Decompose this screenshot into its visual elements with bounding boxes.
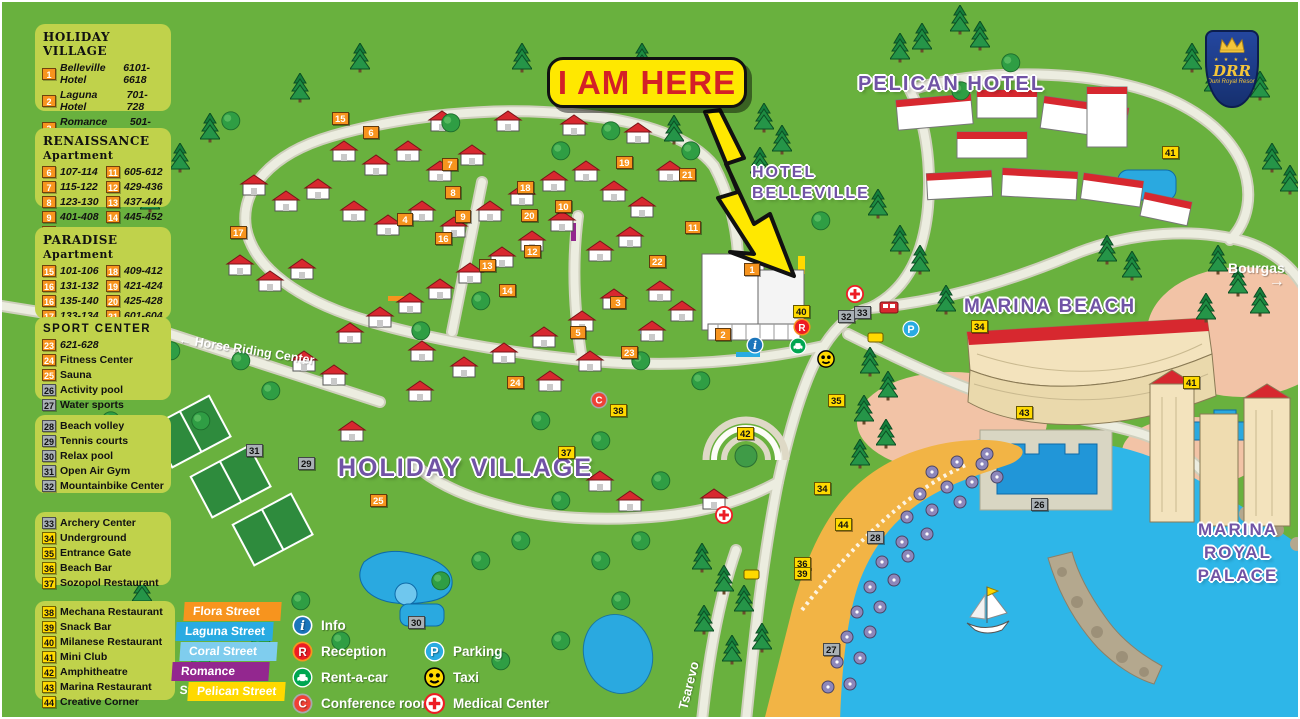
region-label-pelican-hotel: PELICAN HOTEL: [858, 72, 1045, 96]
legend-item-label: Marina Restaurant: [60, 681, 152, 693]
map-marker-7: 7: [442, 158, 458, 171]
legend-item-number-badge: 24: [42, 354, 56, 366]
legend-item-number-badge: 1: [42, 68, 56, 80]
legend-item-number-badge: 13: [106, 196, 120, 208]
legend-item: 25Sauna: [42, 369, 164, 381]
legend-column: 33Archery Center34Underground35Entrance …: [42, 517, 164, 589]
map-marker-44: 44: [835, 518, 852, 531]
legend-item-label: 445-452: [124, 211, 163, 223]
map-marker-38: 38: [610, 404, 627, 417]
rentacar-icon: [789, 337, 807, 355]
legend-item-label: Activity pool: [60, 384, 123, 396]
map-marker-26: 26: [1031, 498, 1048, 511]
legend-item: 8123-130: [42, 196, 100, 208]
legend-item: 23621-628: [42, 339, 164, 351]
medical-icon: [424, 693, 445, 714]
legend-item-number-badge: 8: [42, 196, 56, 208]
legend-item-label: Snack Bar: [60, 621, 111, 633]
legend-item-label: Relax pool: [60, 450, 113, 462]
legend-item-label: 621-628: [60, 339, 99, 351]
legend-panel-title: HOLIDAY VILLAGE: [43, 30, 164, 58]
legend-item: 43Marina Restaurant: [42, 681, 168, 693]
street-legend-laguna-street: Laguna Street: [175, 622, 273, 641]
legend-panel-renaissance-apartment: RENAISSANCE Apartment6107-1147115-122812…: [35, 128, 171, 207]
legend-item-label: Fitness Center: [60, 354, 133, 366]
legend-item: 15101-106: [42, 265, 100, 277]
region-label-line: ROYAL: [1186, 541, 1290, 564]
reception-icon: R: [793, 318, 811, 336]
svg-text:i: i: [753, 339, 757, 352]
icon-legend-rentacar: Rent-a-car: [292, 667, 388, 688]
legend-item-number-badge: 31: [42, 465, 56, 477]
street-legend-romance-street: Romance Street: [171, 662, 269, 681]
svg-text:R: R: [298, 647, 307, 659]
legend-item: 28Beach volley: [42, 420, 164, 432]
legend-item: 38Mechana Restaurant: [42, 606, 168, 618]
legend-item: 27Water sports: [42, 399, 164, 411]
region-label-hotel-belleville: HOTELBELLEVILLE: [752, 162, 870, 204]
i-am-here-text: I AM HERE: [558, 64, 736, 102]
map-marker-15: 15: [332, 112, 349, 125]
map-marker-14: 14: [499, 284, 516, 297]
legend-item: 14445-452: [106, 211, 164, 223]
legend-item-value: 701-728: [127, 89, 164, 113]
icon-legend-conference: CConference room: [292, 693, 433, 714]
conference-icon: C: [590, 391, 608, 409]
map-marker-32: 32: [838, 310, 855, 323]
legend-item-number-badge: 25: [42, 369, 56, 381]
legend-item-number-badge: 11: [106, 166, 120, 178]
medical-icon: [715, 506, 733, 524]
conference-icon: C: [292, 693, 313, 714]
map-marker-16: 16: [435, 232, 452, 245]
map-marker-20: 20: [521, 209, 538, 222]
map-marker-1: 1: [744, 263, 760, 276]
legend-item-label: Sauna: [60, 369, 92, 381]
legend-item-number-badge: 36: [42, 562, 56, 574]
legend-item: 24Fitness Center: [42, 354, 164, 366]
legend-item-number-badge: 37: [42, 577, 56, 589]
legend-item-number-badge: 44: [42, 696, 56, 708]
legend-item-label: Mechana Restaurant: [60, 606, 163, 618]
legend-item-number-badge: 7: [42, 181, 56, 193]
legend-item: 16135-140: [42, 295, 100, 307]
legend-item-label: 115-122: [60, 181, 98, 193]
legend-item: 2Laguna Hotel701-728: [42, 89, 164, 113]
legend-item-label: 429-436: [124, 181, 163, 193]
legend-panel-subtitle: Apartment: [43, 149, 113, 162]
map-marker-9: 9: [455, 210, 471, 223]
legend-item-number-badge: 27: [42, 399, 56, 411]
legend-item-number-badge: 6: [42, 166, 56, 178]
logo-monogram: DRR: [1207, 63, 1257, 79]
legend-column: 23621-62824Fitness Center25Sauna26Activi…: [42, 339, 164, 411]
map-marker-23: 23: [621, 346, 638, 359]
legend-item-number-badge: 41: [42, 651, 56, 663]
legend-item-number-badge: 38: [42, 606, 56, 618]
legend-item-number-badge: 14: [106, 211, 120, 223]
legend-panel-sport-center: SPORT CENTER23621-62824Fitness Center25S…: [35, 317, 171, 400]
legend-item-number-badge: 42: [42, 666, 56, 678]
legend-item-number-badge: 26: [42, 384, 56, 396]
legend-item-label: Water sports: [60, 399, 124, 411]
map-marker-35: 35: [828, 394, 845, 407]
legend-item-label: Beach volley: [60, 420, 124, 432]
legend-item-number-badge: 35: [42, 547, 56, 559]
legend-panel-title: SPORT CENTER: [43, 323, 164, 335]
legend-item-label: 101-106: [60, 265, 99, 277]
icon-legend-medical: Medical Center: [424, 693, 549, 714]
legend-item-value: 6101-6618: [123, 62, 164, 86]
legend-item: 33Archery Center: [42, 517, 164, 529]
map-marker-33: 33: [854, 306, 871, 319]
info-icon: i: [746, 336, 764, 354]
map-marker-12: 12: [524, 245, 541, 258]
legend-item-label: 135-140: [60, 295, 99, 307]
legend-item-label: Mini Club: [60, 651, 107, 663]
map-marker-21: 21: [679, 168, 696, 181]
legend-panel-paradise-apartment: PARADISE Apartment15101-10616131-1321613…: [35, 227, 171, 319]
svg-text:C: C: [298, 699, 307, 711]
legend-item: 42Amphitheatre: [42, 666, 168, 678]
legend-item-number-badge: 15: [42, 265, 56, 277]
info-icon: i: [292, 615, 313, 636]
legend-item: 32Mountainbike Center: [42, 480, 164, 492]
map-marker-17: 17: [230, 226, 247, 239]
icon-legend-label: Info: [321, 618, 346, 633]
svg-text:R: R: [798, 323, 805, 334]
map-marker-24: 24: [507, 376, 524, 389]
map-marker-41: 41: [1162, 146, 1179, 159]
legend-item-number-badge: 40: [42, 636, 56, 648]
region-label-marina-beach: MARINA BEACH: [964, 296, 1136, 318]
map-marker-22: 22: [649, 255, 666, 268]
svg-text:C: C: [595, 396, 602, 407]
map-marker-5: 5: [570, 326, 586, 339]
legend-item-label: 421-424: [124, 280, 163, 292]
map-marker-3: 3: [610, 296, 626, 309]
legend-item: 37Sozopol Restaurant: [42, 577, 164, 589]
map-marker-2: 2: [715, 328, 731, 341]
region-label-marina-royal-palace: MARINAROYALPALACE: [1186, 518, 1290, 587]
legend-columns: 33Archery Center34Underground35Entrance …: [42, 517, 164, 589]
region-label-line: MARINA: [1186, 518, 1290, 541]
legend-item-number-badge: 33: [42, 517, 56, 529]
rentacar-icon: [292, 667, 313, 688]
map-marker-10: 10: [555, 200, 572, 213]
legend-item-label: Entrance Gate: [60, 547, 131, 559]
icon-legend-label: Rent-a-car: [321, 670, 388, 685]
region-label-line: HOLIDAY VILLAGE: [338, 454, 593, 482]
road-label-bourgas: Bourgas→: [1228, 260, 1285, 291]
legend-item: 18409-412: [106, 265, 164, 277]
medical-icon: [846, 285, 864, 303]
icon-legend-label: Reception: [321, 644, 386, 659]
legend-item-number-badge: 34: [42, 532, 56, 544]
legend-item-label: Tennis courts: [60, 435, 128, 447]
icon-legend-label: Parking: [453, 644, 503, 659]
legend-item-number-badge: 18: [106, 265, 120, 277]
legend-item: 19421-424: [106, 280, 164, 292]
map-marker-13: 13: [479, 259, 496, 272]
region-label-line: HOTEL: [752, 162, 870, 183]
map-marker-8: 8: [445, 186, 461, 199]
map-marker-41: 41: [1183, 376, 1200, 389]
legend-item-number-badge: 2: [42, 95, 56, 107]
icon-legend-reception: RReception: [292, 641, 386, 662]
logo-name: Duni Royal Resort: [1207, 79, 1257, 86]
map-marker-37: 37: [558, 446, 575, 459]
map-marker-28: 28: [867, 531, 884, 544]
legend-item-label: Milanese Restaurant: [60, 636, 162, 648]
legend-item: 11605-612: [106, 166, 164, 178]
legend-item-number-badge: 16: [42, 295, 56, 307]
legend-item: 30Relax pool: [42, 450, 164, 462]
legend-item: 44Creative Corner: [42, 696, 168, 708]
legend-columns: 28Beach volley29Tennis courts30Relax poo…: [42, 420, 164, 492]
legend-item-label: Underground: [60, 532, 127, 544]
svg-text:P: P: [907, 324, 914, 336]
legend-item: 29Tennis courts: [42, 435, 164, 447]
legend-item-label: 131-132: [60, 280, 99, 292]
legend-panel-title: PARADISE Apartment: [43, 233, 164, 261]
legend-item: 7115-122: [42, 181, 100, 193]
map-marker-43: 43: [1016, 406, 1033, 419]
legend-item: 34Underground: [42, 532, 164, 544]
legend-item-label: 401-408: [60, 211, 99, 223]
legend-panel-subtitle: Apartment: [43, 248, 113, 261]
legend-item-number-badge: 9: [42, 211, 56, 223]
legend-panel-facilities: 33Archery Center34Underground35Entrance …: [35, 512, 171, 585]
street-legend-flora-street: Flora Street: [183, 602, 281, 621]
map-marker-34: 34: [814, 482, 831, 495]
legend-column: 28Beach volley29Tennis courts30Relax poo…: [42, 420, 164, 492]
legend-item-label: 409-412: [124, 265, 163, 277]
legend-item: 6107-114: [42, 166, 100, 178]
parking-icon: P: [902, 320, 920, 338]
legend-item-label: 605-612: [124, 166, 163, 178]
legend-panel-title: RENAISSANCE Apartment: [43, 134, 164, 162]
svg-text:i: i: [300, 618, 305, 633]
legend-item: 40Milanese Restaurant: [42, 636, 168, 648]
legend-item-number-badge: 16: [42, 280, 56, 292]
map-marker-4: 4: [397, 213, 413, 226]
legend-item-label: 107-114: [60, 166, 98, 178]
legend-item-number-badge: 32: [42, 480, 56, 492]
legend-item: 39Snack Bar: [42, 621, 168, 633]
map-marker-6: 6: [363, 126, 379, 139]
legend-item-label: Archery Center: [60, 517, 136, 529]
map-marker-27: 27: [823, 643, 840, 656]
street-legend-pelican-street: Pelican Street: [187, 682, 285, 701]
legend-column: 38Mechana Restaurant39Snack Bar40Milanes…: [42, 606, 168, 708]
legend-item-label: 437-444: [124, 196, 163, 208]
map-marker-42: 42: [737, 427, 754, 440]
legend-columns: 38Mechana Restaurant39Snack Bar40Milanes…: [42, 606, 168, 708]
legend-columns: 23621-62824Fitness Center25Sauna26Activi…: [42, 339, 164, 411]
icon-legend-parking: PParking: [424, 641, 503, 662]
icon-legend-label: Taxi: [453, 670, 479, 685]
reception-icon: R: [292, 641, 313, 662]
icon-legend-label: Conference room: [321, 696, 433, 711]
legend-item-number-badge: 28: [42, 420, 56, 432]
legend-item-label: Creative Corner: [60, 696, 139, 708]
street-legend-coral-street: Coral Street: [179, 642, 277, 661]
legend-item-number-badge: 23: [42, 339, 56, 351]
legend-item: 41Mini Club: [42, 651, 168, 663]
legend-item: 20425-428: [106, 295, 164, 307]
icon-legend-info: iInfo: [292, 615, 346, 636]
map-marker-19: 19: [616, 156, 633, 169]
legend-item-label: Amphitheatre: [60, 666, 128, 678]
legend-item: 36Beach Bar: [42, 562, 164, 574]
legend-item-label: 123-130: [60, 196, 99, 208]
legend-panel-restaurants: 38Mechana Restaurant39Snack Bar40Milanes…: [35, 601, 175, 700]
legend-item-label: Belleville Hotel: [60, 62, 119, 86]
legend-item: 16131-132: [42, 280, 100, 292]
legend-item-label: Laguna Hotel: [60, 89, 123, 113]
region-label-line: MARINA BEACH: [964, 296, 1136, 318]
icon-legend-taxi: Taxi: [424, 667, 479, 688]
legend-item: 13437-444: [106, 196, 164, 208]
map-marker-40: 40: [793, 305, 810, 318]
map-marker-39: 39: [794, 567, 811, 580]
legend-item-number-badge: 43: [42, 681, 56, 693]
resort-map: I AM HERE ★ ★ ★ ★ DRR Duni Royal Resort …: [0, 0, 1300, 719]
parking-icon: P: [424, 641, 445, 662]
region-label-line: PELICAN HOTEL: [858, 72, 1045, 96]
legend-item: 26Activity pool: [42, 384, 164, 396]
legend-item-label: Open Air Gym: [60, 465, 130, 477]
region-label-line: PALACE: [1186, 564, 1290, 587]
map-marker-29: 29: [298, 457, 315, 470]
map-marker-30: 30: [408, 616, 425, 629]
legend-item: 12429-436: [106, 181, 164, 193]
map-marker-11: 11: [685, 221, 701, 234]
legend-item-number-badge: 20: [106, 295, 120, 307]
legend-item-label: Sozopol Restaurant: [60, 577, 159, 589]
legend-item-number-badge: 29: [42, 435, 56, 447]
icon-legend-label: Medical Center: [453, 696, 549, 711]
region-label-line: BELLEVILLE: [752, 183, 870, 204]
taxi-icon: [817, 350, 835, 368]
legend-item-label: 425-428: [124, 295, 163, 307]
legend-panel-beach-facilities: 28Beach volley29Tennis courts30Relax poo…: [35, 415, 171, 493]
map-marker-25: 25: [370, 494, 387, 507]
map-marker-34: 34: [971, 320, 988, 333]
svg-text:P: P: [430, 645, 438, 659]
legend-item: 1Belleville Hotel6101-6618: [42, 62, 164, 86]
legend-item-label: Beach Bar: [60, 562, 112, 574]
legend-item-number-badge: 30: [42, 450, 56, 462]
map-marker-31: 31: [246, 444, 263, 457]
crown-icon: [1207, 37, 1257, 58]
legend-item-label: Mountainbike Center: [60, 480, 164, 492]
legend-item-number-badge: 39: [42, 621, 56, 633]
i-am-here-callout: I AM HERE: [547, 57, 747, 108]
map-marker-18: 18: [517, 181, 534, 194]
legend-item: 35Entrance Gate: [42, 547, 164, 559]
region-label-holiday-village: HOLIDAY VILLAGE: [338, 454, 593, 482]
legend-panel-holiday-village: HOLIDAY VILLAGE1Belleville Hotel6101-661…: [35, 24, 171, 111]
legend-item: 9401-408: [42, 211, 100, 223]
taxi-icon: [424, 667, 445, 688]
legend-item-number-badge: 19: [106, 280, 120, 292]
legend-item-number-badge: 12: [106, 181, 120, 193]
legend-item: 31Open Air Gym: [42, 465, 164, 477]
